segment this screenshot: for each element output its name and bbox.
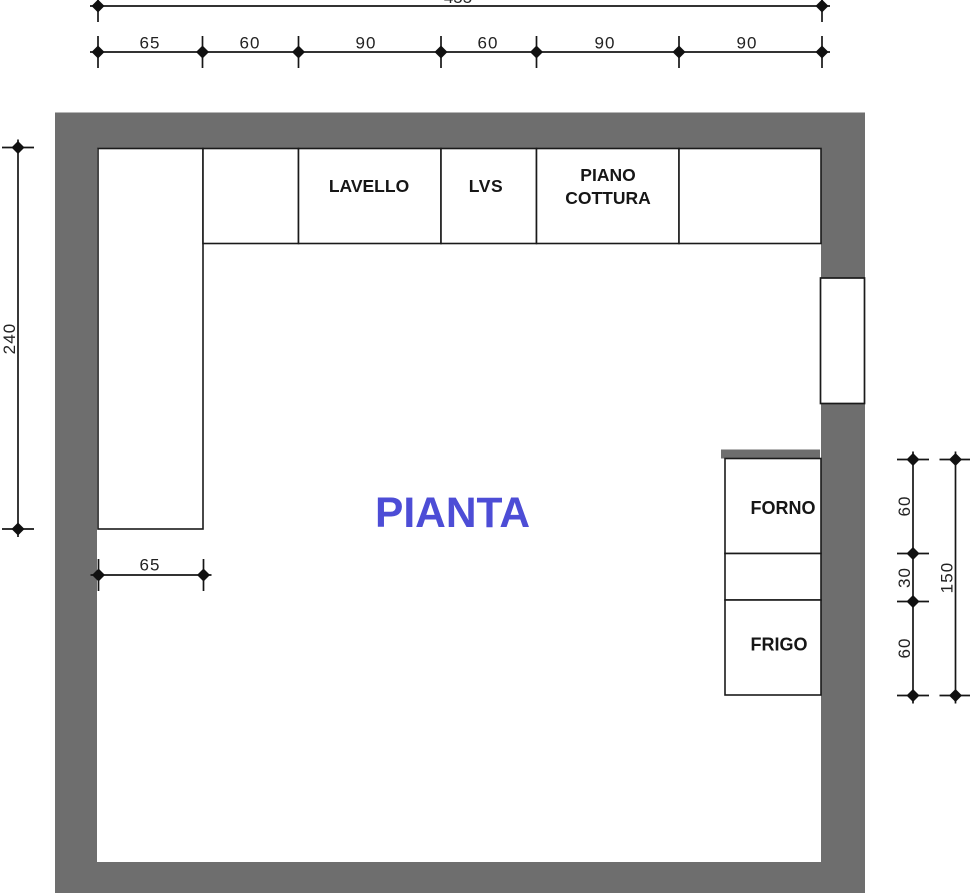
svg-text:LVS: LVS bbox=[469, 176, 504, 196]
svg-text:240: 240 bbox=[0, 323, 19, 355]
svg-text:60: 60 bbox=[895, 495, 914, 516]
svg-text:455: 455 bbox=[444, 0, 472, 7]
svg-text:90: 90 bbox=[355, 34, 376, 53]
svg-text:30: 30 bbox=[895, 567, 914, 588]
svg-text:90: 90 bbox=[594, 34, 615, 53]
svg-text:60: 60 bbox=[895, 637, 914, 658]
svg-text:60: 60 bbox=[477, 34, 498, 53]
svg-text:90: 90 bbox=[736, 34, 757, 53]
svg-text:PIANO: PIANO bbox=[580, 165, 635, 185]
svg-text:150: 150 bbox=[938, 562, 957, 594]
svg-text:LAVELLO: LAVELLO bbox=[329, 176, 409, 196]
svg-text:FORNO: FORNO bbox=[751, 498, 816, 518]
svg-text:60: 60 bbox=[239, 34, 260, 53]
svg-text:65: 65 bbox=[139, 556, 160, 575]
svg-text:COTTURA: COTTURA bbox=[565, 188, 651, 208]
svg-text:PIANTA: PIANTA bbox=[375, 490, 530, 537]
svg-text:65: 65 bbox=[139, 34, 160, 53]
svg-text:FRIGO: FRIGO bbox=[751, 635, 808, 655]
